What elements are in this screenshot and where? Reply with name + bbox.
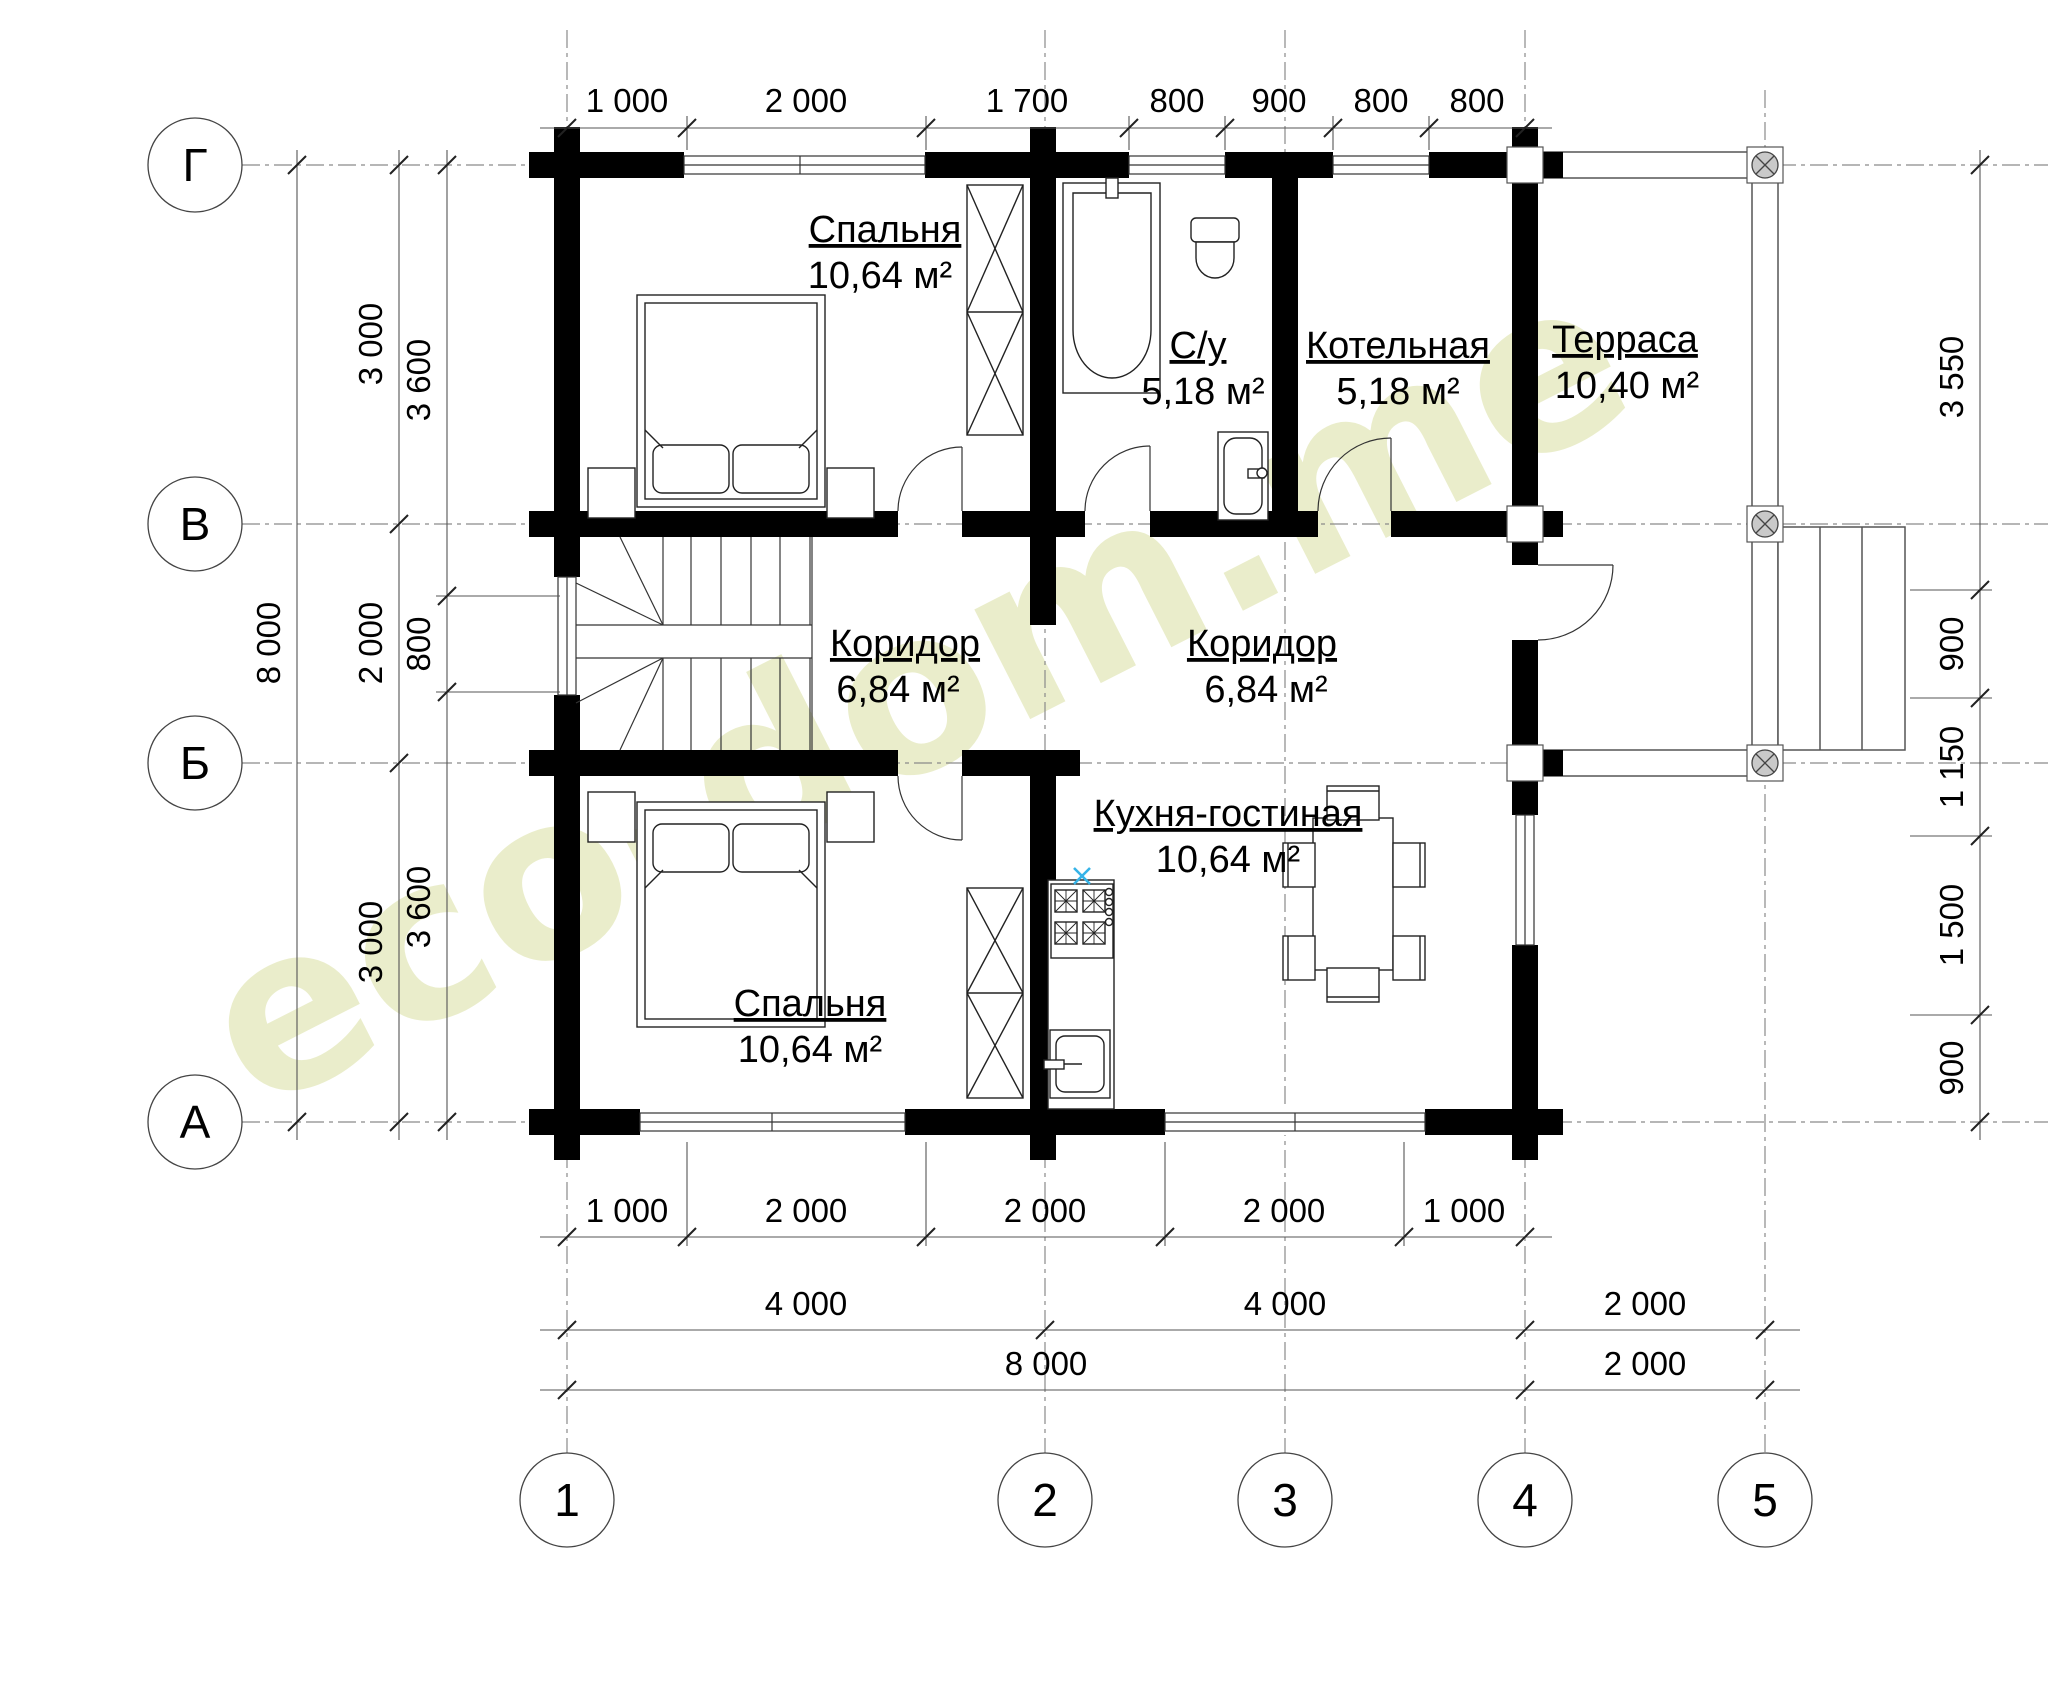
bath-sink-icon: [1218, 432, 1268, 520]
dim-left-inner-1: 800: [400, 616, 437, 671]
bathtub-icon: [1063, 178, 1160, 393]
dim-b2-2: 2 000: [1604, 1285, 1687, 1322]
dim-left-total: 8 000: [250, 602, 287, 685]
nightstand-icon: [827, 792, 874, 842]
room-corridor2-name: Коридор: [1187, 623, 1337, 665]
dim-b1-0: 1 000: [586, 1192, 669, 1229]
room-kitchen-area: 10,64 м²: [1156, 839, 1300, 881]
room-bedroom1-name: Спальня: [809, 209, 962, 251]
kitchen-sink-icon: [1044, 1030, 1110, 1098]
room-corridor2-area: 6,84 м²: [1204, 669, 1327, 711]
axis-col-3: 3: [1272, 1474, 1298, 1526]
room-boiler-name: Котельная: [1306, 325, 1490, 367]
axis-col-1: 1: [554, 1474, 580, 1526]
wall-bedroom1-bath: [1030, 178, 1056, 511]
nightstand-icon: [588, 792, 635, 842]
axis-row-v: В: [180, 498, 211, 550]
bed1-icon: [588, 295, 874, 518]
room-bedroom2-area: 10,64 м²: [738, 1029, 882, 1071]
nightstand-icon: [827, 468, 874, 518]
room-terrace-area: 10,40 м²: [1555, 365, 1699, 407]
room-kitchen-name: Кухня-гостиная: [1094, 793, 1363, 835]
wall-east: [1512, 152, 1538, 1135]
dim-right-3: 1 500: [1933, 884, 1970, 967]
dim-right-4: 900: [1933, 1040, 1970, 1095]
room-bedroom1-area: 10,64 м²: [808, 255, 952, 297]
terrace-beam-east: [1752, 152, 1778, 776]
terrace-beam-top: [1538, 152, 1778, 178]
dim-top-2: 1 700: [986, 82, 1069, 119]
dim-b1-3: 2 000: [1243, 1192, 1326, 1229]
dim-b2-1: 4 000: [1244, 1285, 1327, 1322]
room-terrace-name: Терраса: [1552, 319, 1699, 361]
room-bedroom2-name: Спальня: [734, 983, 887, 1025]
room-labels: Спальня 10,64 м² С/у 5,18 м² Котельная 5…: [734, 209, 1700, 1071]
dim-left-inner-0: 3 600: [400, 339, 437, 422]
dim-left-axis-0: 3 000: [352, 303, 389, 386]
room-bath-name: С/у: [1170, 325, 1227, 367]
room-bath-area: 5,18 м²: [1141, 371, 1264, 413]
kitchen-counter: [1044, 880, 1114, 1109]
dim-top-0: 1 000: [586, 82, 669, 119]
dim-b3-0: 8 000: [1005, 1345, 1088, 1382]
axis-col-2: 2: [1032, 1474, 1058, 1526]
dim-top-6: 800: [1449, 82, 1504, 119]
terrace-beam-bottom: [1538, 750, 1778, 776]
dim-top-5: 800: [1353, 82, 1408, 119]
dim-b2-0: 4 000: [765, 1285, 848, 1322]
dim-top-3: 800: [1149, 82, 1204, 119]
dim-b3-1: 2 000: [1604, 1345, 1687, 1382]
room-corridor1-area: 6,84 м²: [836, 669, 959, 711]
axis-row-b: Б: [180, 737, 210, 789]
dim-top-1: 2 000: [765, 82, 848, 119]
room-corridor1-name: Коридор: [830, 623, 980, 665]
stove-icon: [1051, 884, 1113, 958]
dim-top-4: 900: [1251, 82, 1306, 119]
wardrobe2-icon: [967, 888, 1023, 1098]
axis-row-a: А: [180, 1096, 211, 1148]
room-boiler-area: 5,18 м²: [1336, 371, 1459, 413]
wall-stub-corridor: [1030, 537, 1056, 625]
wardrobe1-icon: [967, 185, 1023, 435]
axis-row-g: Г: [183, 139, 208, 191]
dim-b1-4: 1 000: [1423, 1192, 1506, 1229]
dim-right-1: 900: [1933, 616, 1970, 671]
floor-plan: eco-dom.me: [0, 0, 2070, 1679]
toilet-icon: [1191, 218, 1239, 278]
dim-right-0: 3 550: [1933, 336, 1970, 419]
terrace-steps: [1778, 527, 1905, 750]
axis-col-4: 4: [1512, 1474, 1538, 1526]
dim-left-inner-2: 3 600: [400, 866, 437, 949]
door-entrance: [1538, 565, 1613, 640]
dim-left-axis-1: 2 000: [352, 602, 389, 685]
wall-bath-boiler: [1272, 178, 1298, 511]
axis-col-5: 5: [1752, 1474, 1778, 1526]
dim-b1-1: 2 000: [765, 1192, 848, 1229]
nightstand-icon: [588, 468, 635, 518]
dim-left-axis-2: 3 000: [352, 901, 389, 984]
dim-right-2: 1 150: [1933, 726, 1970, 809]
dim-b1-2: 2 000: [1004, 1192, 1087, 1229]
door-bedroom1: [898, 447, 962, 511]
